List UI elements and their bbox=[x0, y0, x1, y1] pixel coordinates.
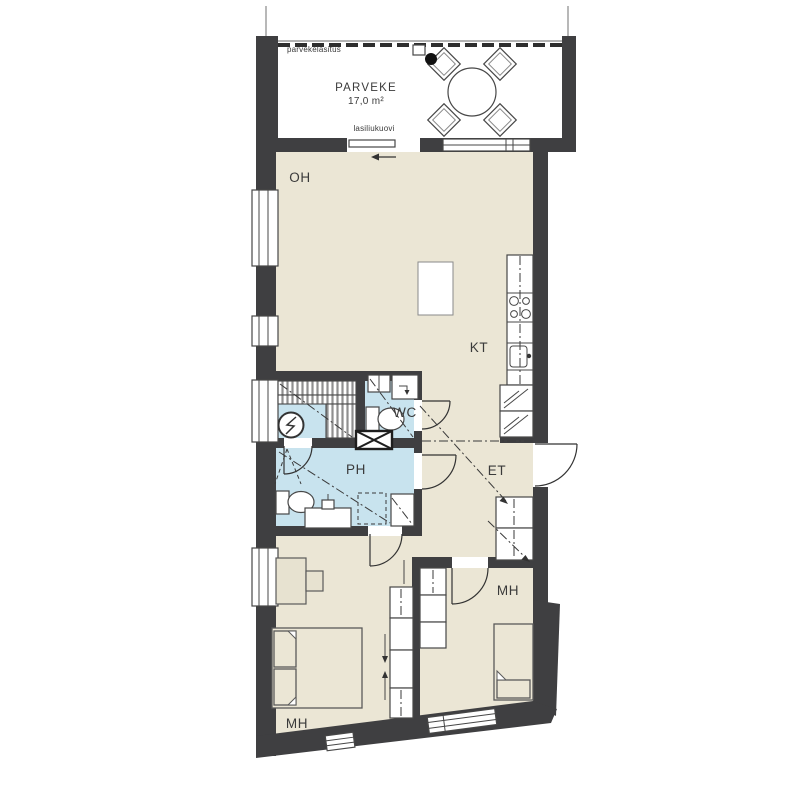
dining-table-icon bbox=[448, 68, 496, 116]
kitchen-island-icon bbox=[418, 262, 453, 315]
balcony-area-label: 17,0 m² bbox=[348, 96, 384, 107]
hallway-closets bbox=[496, 497, 533, 560]
window-icon bbox=[325, 732, 355, 751]
sauna-stove-icon bbox=[279, 413, 304, 438]
window-icon bbox=[252, 548, 278, 606]
single-bed-icon bbox=[494, 624, 533, 700]
floor-plan-drawing: parvekelasitus PARVEKE 17,0 m² lasiliuku… bbox=[0, 0, 800, 800]
kitchen-hall-wall-stub bbox=[500, 437, 548, 443]
right-wall-lower bbox=[533, 600, 560, 716]
kitchen-label: KT bbox=[470, 340, 488, 355]
cabinet-icon bbox=[368, 375, 390, 392]
balcony-name-label: PARVEKE bbox=[335, 82, 397, 94]
balcony-right-pillar bbox=[562, 36, 576, 146]
bathroom-label: PH bbox=[346, 462, 366, 477]
hallway-label: ET bbox=[488, 463, 506, 478]
window-icon bbox=[252, 380, 278, 442]
balcony-left-pillar bbox=[256, 36, 278, 140]
double-bed-icon bbox=[272, 628, 362, 708]
wardrobe-icon bbox=[420, 568, 446, 648]
living-room-label: OH bbox=[289, 170, 310, 185]
balcony-floor bbox=[278, 42, 562, 138]
wardrobe-icon bbox=[496, 497, 533, 560]
duct-shaft-icon bbox=[356, 431, 392, 449]
wc-label: WC bbox=[393, 405, 417, 420]
chair-icon bbox=[306, 571, 323, 591]
wardrobe-icon bbox=[390, 587, 413, 718]
balcony-glazing-label: parvekelasitus bbox=[287, 45, 341, 54]
right-wall bbox=[533, 138, 548, 607]
window-icon bbox=[252, 190, 278, 266]
bedroom2-label: MH bbox=[497, 583, 519, 598]
bedroom1-label: MH bbox=[286, 716, 308, 731]
balcony-door-label: lasiliukuovi bbox=[353, 124, 394, 133]
utility-niche bbox=[391, 494, 414, 526]
tall-cabinet-icon bbox=[500, 385, 533, 437]
desk-icon bbox=[276, 558, 306, 604]
floor-plan-page: parvekelasitus PARVEKE 17,0 m² lasiliuku… bbox=[0, 0, 800, 800]
window-icon bbox=[252, 316, 278, 346]
washing-machine-icon bbox=[392, 375, 418, 399]
window-icon bbox=[443, 139, 530, 151]
